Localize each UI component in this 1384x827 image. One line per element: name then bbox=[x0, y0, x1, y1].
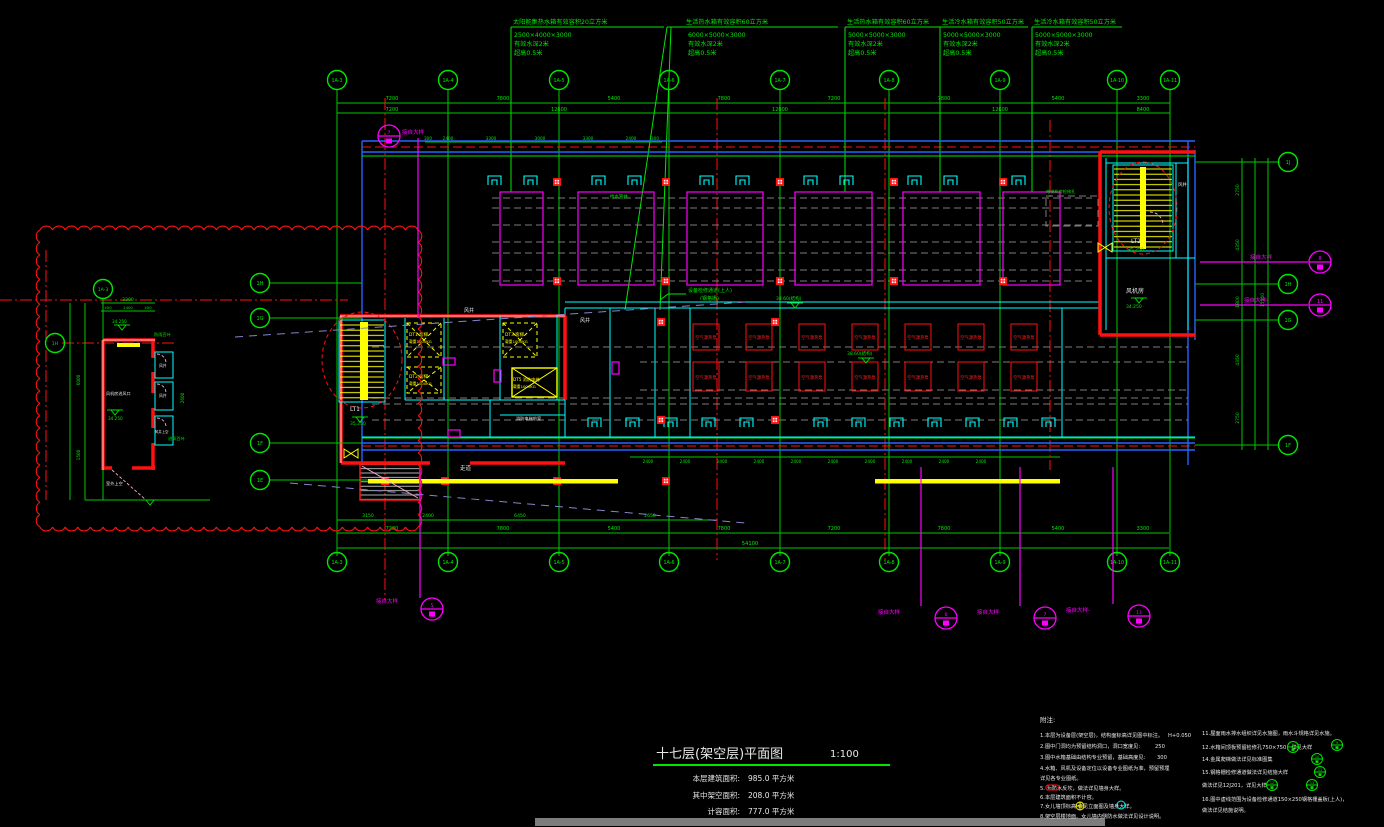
annot: 2500×4000×3000 bbox=[514, 32, 572, 39]
note-line: 2.图中门洞均为预留结构洞口，洞口宽度见: bbox=[1040, 742, 1140, 750]
note-line: 15.钢格栅检修通道做法详见结施大样 bbox=[1202, 768, 1288, 776]
dim: 3300 bbox=[486, 136, 497, 141]
note-line: 详见各专业图纸。 bbox=[1040, 774, 1082, 782]
elevator-load: 载重1000KG bbox=[409, 381, 432, 386]
grid-label: 1F bbox=[257, 441, 263, 447]
level-label: 35.250 bbox=[350, 421, 366, 427]
grid-bubbles-top: 1A-3 1A-4 1A-5 1A-6 1A-7 1A-8 1A-9 1A-10… bbox=[328, 71, 1180, 90]
dimension-2400-row: 2400 2400 2400 2400 2400 2400 2400 2400 … bbox=[643, 459, 987, 464]
dim: 2400 bbox=[680, 459, 691, 464]
dim: 7800 bbox=[718, 96, 731, 102]
dim: 6450 bbox=[514, 513, 526, 519]
cad-canvas: 1A-3 1A-4 1A-5 1A-6 1A-7 1A-8 1A-9 1A-10… bbox=[0, 0, 1384, 827]
dim: 3300 bbox=[583, 136, 594, 141]
callout-sheet: 图 bbox=[1043, 622, 1047, 628]
level-label: 38.60(结构) bbox=[776, 295, 802, 302]
heat-pump-label: 空气源热泵 bbox=[801, 334, 823, 341]
floor-plan-drawing: 1A-3 1A-4 1A-5 1A-6 1A-7 1A-8 1A-9 1A-10… bbox=[0, 0, 1384, 827]
note: (钢格栅) bbox=[700, 295, 719, 302]
dim: 5400 bbox=[608, 526, 621, 532]
callout-text: 接自大样 bbox=[1250, 253, 1273, 261]
elevator-label: DT3 客梯 bbox=[505, 331, 525, 338]
grid-label: 1A-5 bbox=[553, 78, 564, 84]
dim: 2750 bbox=[1235, 184, 1241, 196]
heat-pump-units: 空气源热泵 空气源热泵 空气源热泵 空气源热泵 空气源热泵 空气源热泵 空气源热… bbox=[693, 324, 1037, 391]
dim: 12000 bbox=[772, 107, 788, 113]
dim: 2400 bbox=[939, 459, 950, 464]
heat-pump-label: 空气源热泵 bbox=[748, 374, 770, 381]
dim: 1800 bbox=[1235, 296, 1241, 308]
dim: 5400 bbox=[1052, 526, 1065, 532]
area-value: 985.0 平方米 bbox=[748, 773, 795, 783]
grid-label: 1A-3 bbox=[331, 78, 342, 84]
dim: 2400 bbox=[422, 513, 434, 519]
parapet-bars bbox=[368, 479, 1060, 484]
dim: 450 bbox=[104, 305, 112, 310]
area-value: 208.0 平方米 bbox=[748, 790, 795, 800]
dim: 7800 bbox=[938, 526, 951, 532]
dim: 12600 bbox=[992, 107, 1008, 113]
elevator-label: DT1 客梯 bbox=[409, 331, 429, 338]
area-label: 其中架空面积: bbox=[692, 790, 740, 800]
grid-label: 1A-10 bbox=[1110, 560, 1124, 566]
dim: 4350 bbox=[1235, 354, 1241, 366]
grid-label: 1G bbox=[256, 316, 263, 322]
heat-pump-label: 空气源热泵 bbox=[960, 334, 982, 341]
grid-label: 1A-4 bbox=[442, 78, 453, 84]
annot: 超高0.5米 bbox=[514, 49, 542, 57]
heat-pump-label: 空气源热泵 bbox=[907, 334, 929, 341]
dim: 3300 bbox=[1137, 526, 1150, 532]
grid-label: 1A-11 bbox=[1163, 560, 1177, 566]
heat-pump-label: 空气源热泵 bbox=[695, 334, 717, 341]
callout-num: 7 bbox=[1044, 612, 1047, 618]
dim: 2750 bbox=[1235, 412, 1241, 424]
dim: 4350 bbox=[1235, 239, 1241, 251]
note-line: 6.本层建筑面积不计容。 bbox=[1040, 793, 1097, 801]
grid-label: 1F bbox=[1285, 443, 1291, 449]
annot: 超高0.5米 bbox=[848, 49, 876, 57]
dim: 450 bbox=[144, 305, 152, 310]
note-bubble-num: 11 bbox=[1318, 768, 1322, 772]
room-label: 风机房进风口 bbox=[106, 390, 131, 396]
annot: 超高0.5米 bbox=[943, 49, 971, 57]
dim: 5400 bbox=[608, 96, 621, 102]
grid-label: 1H bbox=[257, 281, 264, 287]
level-label: 35.250 bbox=[1128, 247, 1144, 253]
dim: 7200 bbox=[386, 107, 399, 113]
annot: 有效水深2米 bbox=[1035, 40, 1070, 48]
annot: 生活热水箱有效容积60立方米 bbox=[847, 18, 929, 26]
callout-num: 11 bbox=[1317, 299, 1323, 305]
dim: 2400 bbox=[717, 459, 728, 464]
callout-text: 接自大样- bbox=[1244, 296, 1268, 304]
dim: 2400 bbox=[791, 459, 802, 464]
tank-annotations: 太阳能集热水箱有效容积20立方米 2500×4000×3000 有效水深2米 超… bbox=[511, 18, 1122, 310]
grid-label: 1A-3 bbox=[98, 287, 109, 293]
drawing-title: 十七层(架空层)平面图 bbox=[656, 747, 783, 762]
level-label: 34.250 bbox=[112, 319, 127, 324]
annot: 6000×5000×3000 bbox=[688, 32, 746, 39]
level-label: 34.250 bbox=[1126, 304, 1142, 310]
callout-num: 5 bbox=[431, 603, 434, 609]
dim: 12600 bbox=[551, 107, 567, 113]
note-line: 14.金属爬梯做法详见标准图集 bbox=[1202, 755, 1273, 763]
grid-lines-red bbox=[0, 98, 1195, 600]
dim: 7800 bbox=[497, 526, 510, 532]
note-bubble-num: 13 bbox=[1310, 781, 1314, 785]
dim: 8400 bbox=[1137, 107, 1150, 113]
room-label: 风井 bbox=[464, 307, 474, 314]
elevator-load: 载重1000KG bbox=[505, 339, 528, 344]
room-label: 室外上空 bbox=[106, 480, 123, 487]
grid-label: 1H bbox=[1285, 282, 1292, 288]
callout-num: 6 bbox=[945, 612, 948, 618]
note-line: 11.屋面雨水排水组织详见水施图，雨水斗规格详见水施。 bbox=[1202, 729, 1335, 737]
scrollbar[interactable] bbox=[535, 818, 1105, 826]
callout-num: 7 bbox=[388, 130, 391, 136]
dim: 3000 bbox=[535, 136, 546, 141]
dim: 2400 bbox=[828, 459, 839, 464]
callout-text: 接自大样 bbox=[878, 608, 901, 616]
stair-label: LT1 bbox=[350, 406, 360, 413]
callout-num: 8 bbox=[1318, 256, 1321, 262]
grid-label: 1G bbox=[1284, 318, 1291, 324]
dim: 2400 bbox=[123, 305, 133, 310]
annot: 太阳能集热水箱有效容积20立方米 bbox=[513, 18, 608, 26]
note: 进风百叶 bbox=[168, 435, 186, 442]
room-label: 风井上空 bbox=[155, 429, 169, 434]
room-label: 消防电梯前室 bbox=[516, 415, 541, 422]
callout-num: 11 bbox=[1136, 610, 1142, 616]
grid-label: 1A-6 bbox=[663, 560, 674, 566]
dim: 2400 bbox=[976, 459, 987, 464]
note: 防雨百叶 bbox=[154, 331, 172, 338]
annot: 生活热水箱有效容积60立方米 bbox=[686, 18, 768, 26]
dim: 2400 bbox=[626, 136, 637, 141]
room-label: 风井 bbox=[1178, 181, 1187, 188]
dimension-texts-bottom: 3150 2400 6450 2650 7200 7800 5400 7800 … bbox=[362, 513, 1149, 547]
dim: 2400 bbox=[643, 459, 654, 464]
room-label: 走道 bbox=[460, 464, 472, 472]
dim: 7200 bbox=[386, 96, 399, 102]
area-value: 777.0 平方米 bbox=[748, 806, 795, 816]
note-line: 3.图中水箱基础由结构专业预留，基础高度见: bbox=[1040, 753, 1146, 761]
callout-sheet: 图 bbox=[1137, 620, 1141, 626]
annot: 5000×5000×3000 bbox=[848, 32, 906, 39]
callout-sheet: 图 bbox=[387, 139, 391, 145]
callout-sheet: 图 bbox=[1318, 309, 1322, 315]
annot: 生活冷水箱有效容积50立方米 bbox=[942, 18, 1024, 26]
grid-bubbles-bottom: 1A-3 1A-4 1A-5 1A-6 1A-7 1A-8 1A-9 1A-10… bbox=[328, 553, 1180, 572]
elevator-load: 载重1000KG bbox=[513, 384, 536, 389]
callout-sheet: 图 bbox=[430, 613, 434, 619]
dim: 2600 bbox=[180, 392, 185, 403]
stair-label: LT2 bbox=[1131, 238, 1141, 245]
grid-label: 1A-9 bbox=[994, 560, 1005, 566]
heat-pump-label: 空气源热泵 bbox=[801, 374, 823, 381]
dim: 300 bbox=[424, 136, 432, 141]
note-line: 8.架空层楼地面、女儿墙内侧防水做法详见设计说明。 bbox=[1040, 812, 1164, 820]
dim: 3150 bbox=[362, 513, 374, 519]
columns bbox=[381, 178, 1007, 485]
callout-text: 接自大样 bbox=[376, 597, 399, 605]
grid-label: 1A-8 bbox=[883, 78, 894, 84]
grid-label: 1H bbox=[52, 341, 58, 347]
grid-label: 1A-7 bbox=[774, 560, 785, 566]
note-line: 做法详见12J201，详见大样 bbox=[1202, 781, 1267, 789]
dim: 3300 bbox=[122, 297, 134, 303]
grid-label: 1A-5 bbox=[553, 560, 564, 566]
room-label: 风井 bbox=[159, 363, 167, 368]
heat-pump-label: 空气源热泵 bbox=[748, 334, 770, 341]
annot: 有效水深2米 bbox=[688, 40, 723, 48]
hatch-label: 电梯机房检修孔 bbox=[1046, 188, 1076, 195]
note-line: 4.水箱、风机及设备定位以设备专业图纸为准，预留预埋 bbox=[1040, 764, 1169, 772]
heat-pump-label: 空气源热泵 bbox=[695, 374, 717, 381]
dim: 7800 bbox=[497, 96, 510, 102]
callout-sheet: 图 bbox=[1318, 266, 1322, 272]
annot: 超高0.5米 bbox=[1035, 49, 1063, 57]
note-bubble-num: 12 bbox=[1270, 781, 1274, 785]
note-line: 1.本层为设备层(架空层)，结构面标高详见图中标注。 bbox=[1040, 731, 1163, 739]
annot: 5000×5000×3000 bbox=[943, 32, 1001, 39]
note: 给水管井 bbox=[610, 193, 628, 200]
heat-pump-label: 空气源热泵 bbox=[854, 334, 876, 341]
dim: 1500 bbox=[76, 449, 81, 460]
heat-pump-label: 空气源热泵 bbox=[1013, 334, 1035, 341]
dim: 300 bbox=[651, 136, 659, 141]
area-label: 本层建筑面积: bbox=[692, 773, 740, 783]
dim: 7800 bbox=[718, 526, 731, 532]
dim: 5400 bbox=[1052, 96, 1065, 102]
dim: 7200 bbox=[828, 96, 841, 102]
note-line: 16.图中虚线范围为设备检修通道150×250钢格栅盖板(上人)， bbox=[1202, 795, 1347, 803]
dim-overall: 54100 bbox=[742, 541, 759, 547]
heat-pump-label: 空气源热泵 bbox=[907, 374, 929, 381]
heat-pump-label: 空气源热泵 bbox=[854, 374, 876, 381]
note-line: 做法详见结施说明。 bbox=[1202, 806, 1249, 814]
callout-sheet: 图 bbox=[944, 622, 948, 628]
dim: 2400 bbox=[443, 136, 454, 141]
annot: 超高0.5米 bbox=[688, 49, 716, 57]
dim: 3300 bbox=[1137, 96, 1150, 102]
dim: 2400 bbox=[865, 459, 876, 464]
note: 设备检修通道(上人) bbox=[688, 287, 732, 294]
grid-lines bbox=[337, 90, 1170, 556]
grid-label: 1A-3 bbox=[331, 560, 342, 566]
notes-block: 附注: 1.本层为设备层(架空层)，结构面标高详见图中标注。 2.图中门洞均为预… bbox=[1040, 715, 1347, 820]
grid-label: 1J bbox=[1286, 160, 1291, 166]
grid-label: 1A-9 bbox=[994, 78, 1005, 84]
note-value: 300 bbox=[1157, 755, 1167, 761]
level-label: 34.250 bbox=[108, 416, 123, 421]
callout-text: 接自大样 bbox=[977, 608, 1000, 616]
note-bubble-num: 9 bbox=[1336, 741, 1338, 745]
callout-text: 接自大样- bbox=[1066, 606, 1090, 614]
dim: 7200 bbox=[828, 526, 841, 532]
area-label: 计容面积: bbox=[707, 806, 740, 816]
dim: 6000 bbox=[76, 374, 81, 385]
heat-pump-label: 空气源热泵 bbox=[960, 374, 982, 381]
annot: 有效水深2米 bbox=[943, 40, 978, 48]
title-block: 十七层(架空层)平面图 1:100 本层建筑面积: 985.0 平方米 其中架空… bbox=[653, 747, 890, 816]
grid-label: 1A-7 bbox=[774, 78, 785, 84]
note-value: 250 bbox=[1155, 744, 1165, 750]
room-label: 风机房 bbox=[1126, 287, 1144, 295]
note-bubble-num: 8 bbox=[1292, 743, 1294, 747]
note-value: H+0.050 bbox=[1168, 733, 1191, 739]
annot: 有效水深2米 bbox=[514, 40, 549, 48]
dim: 2400 bbox=[754, 459, 765, 464]
level-label: 38.60(结构) bbox=[847, 350, 873, 357]
note-bubble-num: 10 bbox=[1315, 755, 1319, 759]
annot: 生活冷水箱有效容积50立方米 bbox=[1034, 18, 1116, 26]
annot: 有效水深2米 bbox=[848, 40, 883, 48]
grid-label: 1A-8 bbox=[883, 560, 894, 566]
drawing-scale: 1:100 bbox=[830, 749, 859, 760]
notes-header: 附注: bbox=[1040, 715, 1055, 724]
callout-text: 接自大样 bbox=[402, 128, 425, 136]
grid-label: 1A-11 bbox=[1163, 78, 1177, 84]
room-label: 风井 bbox=[580, 317, 590, 324]
plan-green-notes: 设备检修通道(上人) (钢格栅) 38.60(结构) 38.60(结构) 给水管… bbox=[610, 193, 874, 363]
room-label: 风井 bbox=[159, 393, 167, 398]
heat-pump-label: 空气源热泵 bbox=[1013, 374, 1035, 381]
elevator-label: DT5 消防电梯 bbox=[513, 376, 540, 383]
grid-label: 1A-4 bbox=[442, 560, 453, 566]
grid-label: 1A-10 bbox=[1110, 78, 1124, 84]
grid-label: 1E bbox=[257, 478, 263, 484]
annot: 5000×5000×3000 bbox=[1035, 32, 1093, 39]
dim: 2400 bbox=[902, 459, 913, 464]
